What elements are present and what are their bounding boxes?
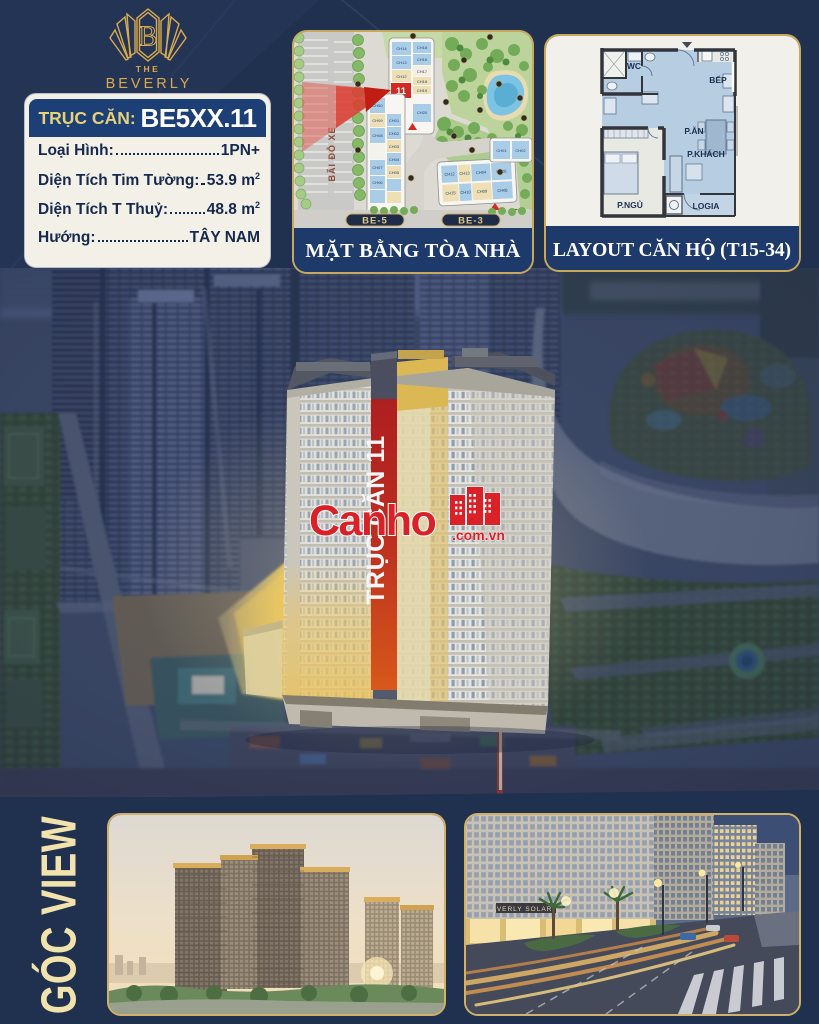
svg-text:CH02: CH02	[515, 148, 526, 153]
svg-text:LOGIA: LOGIA	[693, 201, 720, 211]
svg-text:CH10: CH10	[460, 189, 471, 195]
svg-text:VERLY SOLARI: VERLY SOLARI	[497, 906, 555, 913]
svg-text:CH09: CH09	[477, 188, 488, 194]
svg-text:CH02: CH02	[389, 131, 400, 136]
svg-text:CH14: CH14	[396, 46, 407, 51]
svg-text:CH19: CH19	[417, 88, 428, 93]
svg-text:CH03: CH03	[389, 144, 400, 149]
svg-text:CH13: CH13	[459, 170, 470, 176]
svg-text:CH04: CH04	[389, 157, 400, 162]
svg-text:.com.vn: .com.vn	[452, 527, 505, 543]
svg-text:CH05: CH05	[389, 170, 400, 175]
svg-text:CH20: CH20	[417, 110, 428, 115]
svg-text:P.NGỦ: P.NGỦ	[617, 199, 643, 210]
svg-text:BE-5: BE-5	[362, 216, 388, 227]
svg-text:Canho: Canho	[309, 497, 436, 545]
svg-text:BEVERLY: BEVERLY	[106, 76, 193, 92]
svg-text:CH04: CH04	[476, 170, 487, 176]
svg-text:CH08: CH08	[372, 133, 383, 138]
svg-text:CH08: CH08	[497, 187, 508, 193]
svg-text:CH12: CH12	[396, 74, 407, 79]
svg-text:CH17: CH17	[417, 69, 428, 74]
svg-text:CH06: CH06	[372, 180, 383, 185]
svg-text:THE: THE	[136, 64, 161, 74]
svg-text:BẾP: BẾP	[709, 75, 727, 85]
svg-text:CH09: CH09	[372, 118, 383, 123]
svg-text:LAYOUT CĂN HỘ (T15-34): LAYOUT CĂN HỘ (T15-34)	[553, 239, 791, 261]
svg-text:WC: WC	[627, 61, 641, 71]
svg-text:CH18: CH18	[417, 79, 428, 84]
svg-text:P.KHÁCH: P.KHÁCH	[687, 149, 725, 159]
svg-text:CH15: CH15	[445, 190, 456, 196]
svg-text:BÃI ĐỖ XE: BÃI ĐỖ XE	[326, 126, 337, 181]
svg-text:CH01: CH01	[389, 118, 400, 123]
svg-text:CH13: CH13	[396, 60, 407, 65]
svg-text:CH12: CH12	[444, 171, 455, 177]
svg-text:CH16: CH16	[417, 57, 428, 62]
svg-text:BE-3: BE-3	[458, 216, 484, 227]
svg-text:CH18: CH18	[417, 45, 428, 50]
svg-text:CH07: CH07	[372, 165, 383, 170]
svg-text:CH01: CH01	[496, 148, 507, 153]
svg-text:MẶT BẰNG TÒA NHÀ: MẶT BẰNG TÒA NHÀ	[305, 238, 520, 262]
svg-text:P.ĂN: P.ĂN	[684, 126, 703, 136]
svg-text:B: B	[139, 21, 158, 52]
